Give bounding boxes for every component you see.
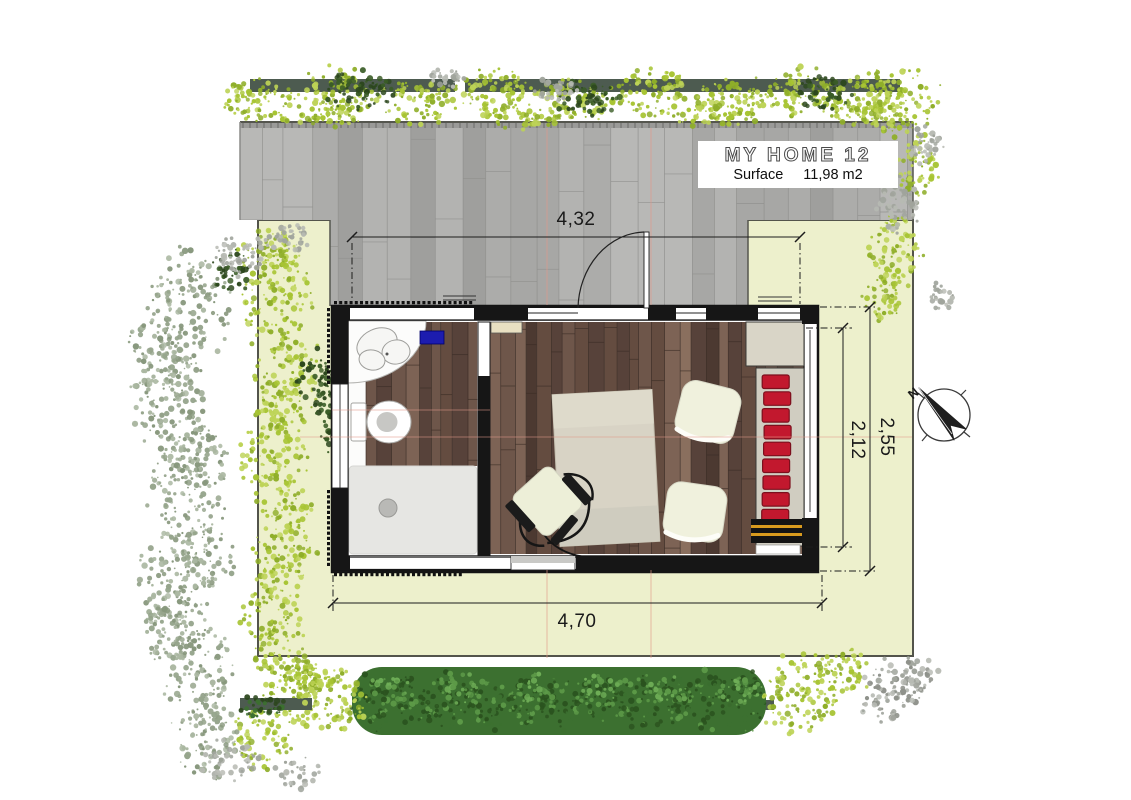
north-needle	[919, 388, 966, 440]
plan-title: MY HOME 12	[698, 145, 898, 166]
floor-plan-drawing: N	[0, 0, 1131, 800]
pouf	[661, 480, 728, 544]
surface-value: 11,98 m2	[803, 166, 862, 184]
blue-bath-mat	[420, 331, 444, 344]
bench	[751, 519, 805, 543]
floor-plan-canvas: N MY HOME 12 Surface 11,98 m2 4,32 4,70 …	[0, 0, 1131, 800]
north-compass: N	[905, 384, 970, 441]
dimension-bottom-label: 4,70	[558, 611, 597, 633]
shower-tray	[349, 466, 477, 554]
dimension-right-inner-label: 2,12	[846, 421, 868, 460]
shower-drain	[379, 499, 397, 517]
title-block: MY HOME 12 Surface 11,98 m2	[698, 141, 898, 188]
bottom-hedge	[239, 648, 942, 737]
surface-label: Surface	[733, 166, 783, 184]
bathroom-door-leaf	[491, 322, 522, 333]
door-leaf	[644, 232, 649, 308]
counter	[746, 322, 804, 366]
dimension-top-label: 4,32	[557, 209, 596, 231]
sofa-cushions	[762, 375, 791, 523]
dimension-right-outer-label: 2,55	[875, 418, 897, 457]
